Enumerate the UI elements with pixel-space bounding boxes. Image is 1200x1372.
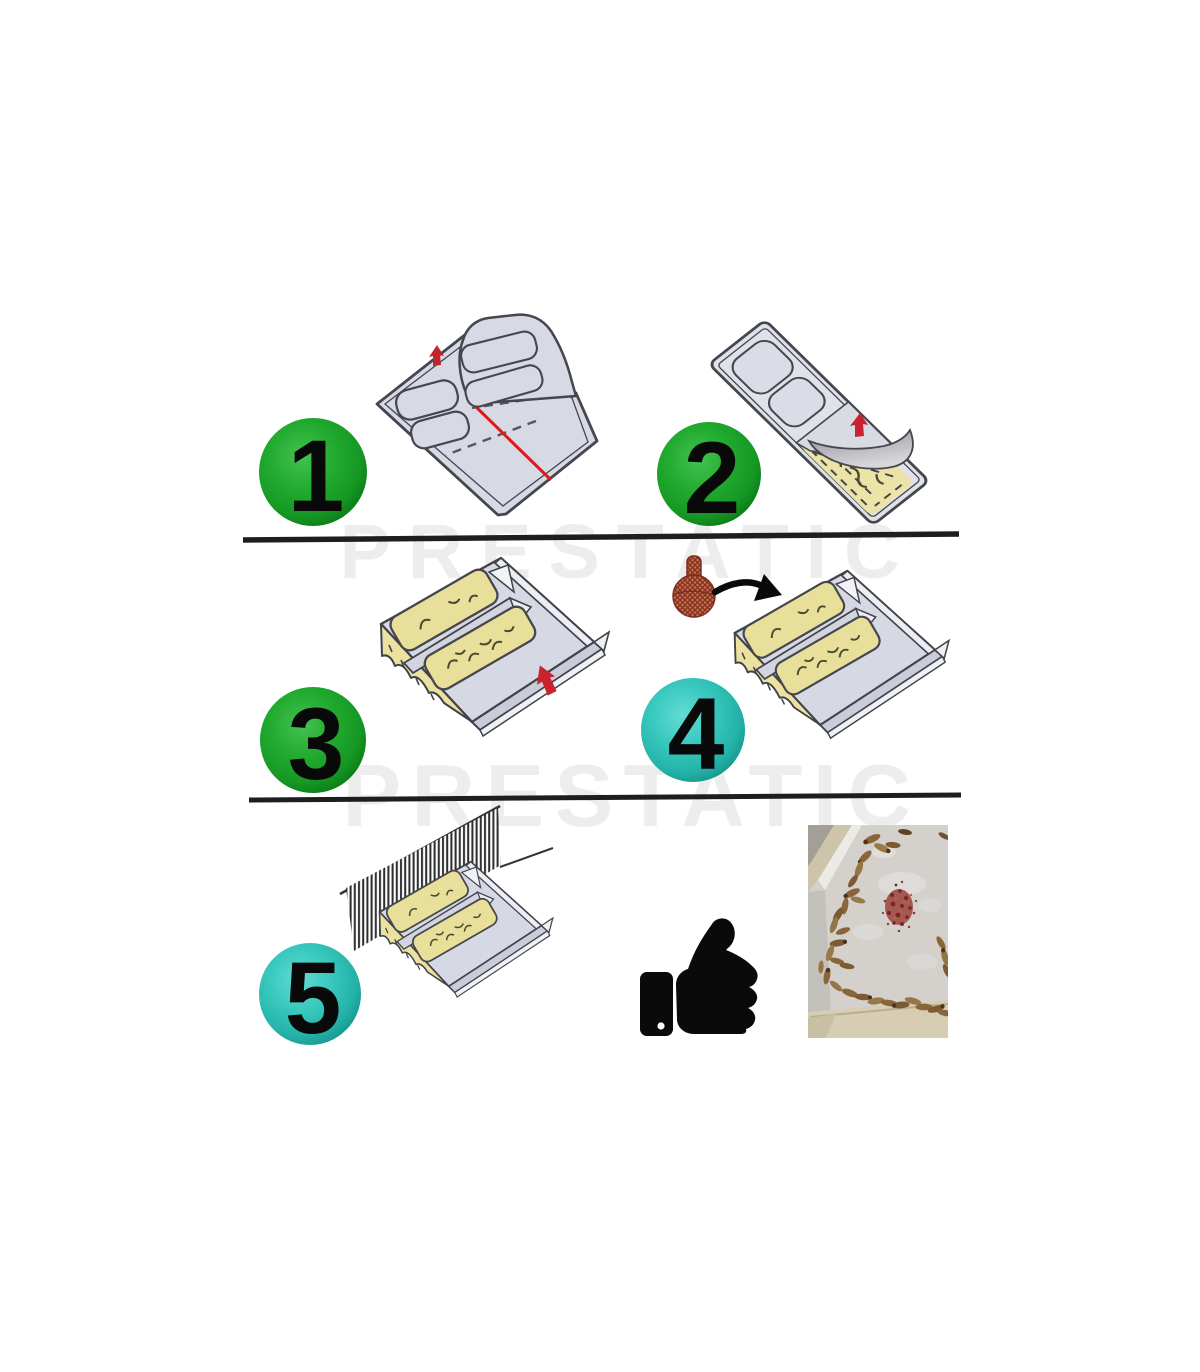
svg-text:2: 2 [684,421,741,535]
svg-text:1: 1 [288,419,345,533]
svg-text:5: 5 [285,941,342,1055]
svg-text:4: 4 [668,677,725,791]
svg-text:3: 3 [288,687,345,801]
